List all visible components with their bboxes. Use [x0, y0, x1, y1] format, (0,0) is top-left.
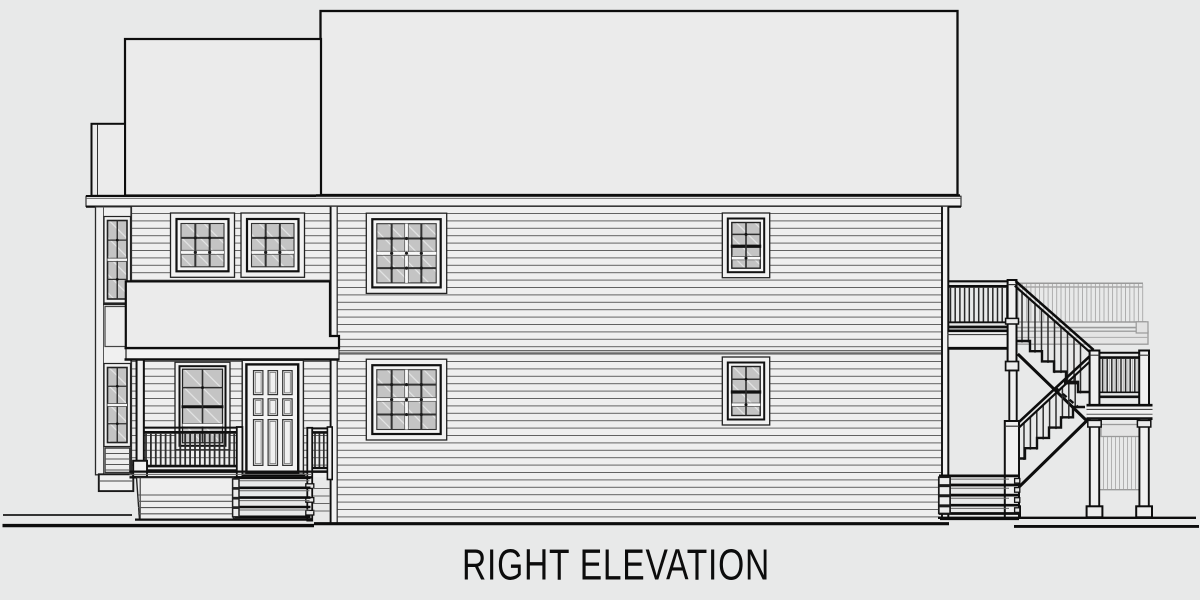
svg-text:RIGHT ELEVATION: RIGHT ELEVATION [462, 542, 770, 590]
